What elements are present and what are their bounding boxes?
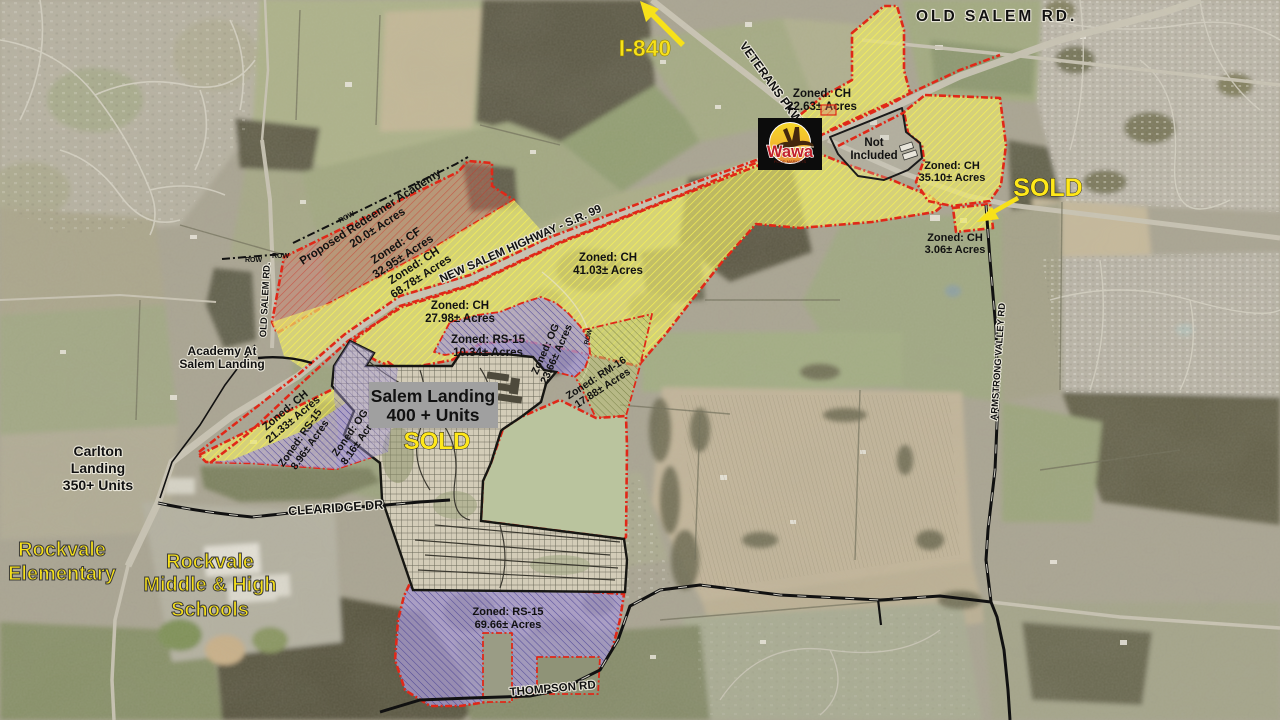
svg-text:Elementary: Elementary xyxy=(8,563,117,585)
svg-text:400 + Units: 400 + Units xyxy=(387,405,480,425)
svg-text:Schools: Schools xyxy=(171,599,249,621)
svg-text:Included: Included xyxy=(850,150,897,162)
svg-text:69.66± Acres: 69.66± Acres xyxy=(475,619,542,631)
svg-text:Zoned: RS-15: Zoned: RS-15 xyxy=(451,334,526,346)
svg-text:I-840: I-840 xyxy=(619,35,671,61)
svg-text:35.10± Acres: 35.10± Acres xyxy=(919,172,986,184)
svg-text:Salem Landing: Salem Landing xyxy=(371,386,495,406)
svg-text:OLD SALEM RD.: OLD SALEM RD. xyxy=(916,8,1077,25)
svg-text:3.06± Acres: 3.06± Acres xyxy=(925,244,986,256)
svg-text:SOLD: SOLD xyxy=(1013,174,1082,202)
svg-text:Not: Not xyxy=(864,137,883,149)
svg-text:SOLD: SOLD xyxy=(404,428,471,455)
svg-text:Zoned: CH: Zoned: CH xyxy=(924,160,980,172)
svg-text:Zoned: CH: Zoned: CH xyxy=(927,232,983,244)
svg-text:10.34± Acres: 10.34± Acres xyxy=(453,347,523,359)
svg-text:Rockvale: Rockvale xyxy=(18,539,106,561)
svg-text:ROW: ROW xyxy=(245,257,263,264)
svg-text:Zoned: CH: Zoned: CH xyxy=(431,300,489,312)
svg-text:Carlton: Carlton xyxy=(74,443,123,459)
svg-text:27.98± Acres: 27.98± Acres xyxy=(425,313,495,325)
svg-text:Landing: Landing xyxy=(71,460,125,476)
svg-text:ROW: ROW xyxy=(272,253,290,260)
svg-text:Zoned: CH: Zoned: CH xyxy=(579,252,637,264)
svg-text:Academy At: Academy At xyxy=(188,344,257,358)
svg-text:Middle & High: Middle & High xyxy=(143,574,276,596)
svg-text:Rockvale: Rockvale xyxy=(166,551,254,573)
svg-text:41.03± Acres: 41.03± Acres xyxy=(573,265,643,277)
svg-text:350+ Units: 350+ Units xyxy=(63,477,134,493)
svg-text:Zoned: RS-15: Zoned: RS-15 xyxy=(473,606,544,618)
svg-text:Salem Landing: Salem Landing xyxy=(179,357,264,371)
svg-text:FOOD MARKETS: FOOD MARKETS xyxy=(774,159,806,164)
svg-text:Zoned: CH: Zoned: CH xyxy=(793,88,851,100)
